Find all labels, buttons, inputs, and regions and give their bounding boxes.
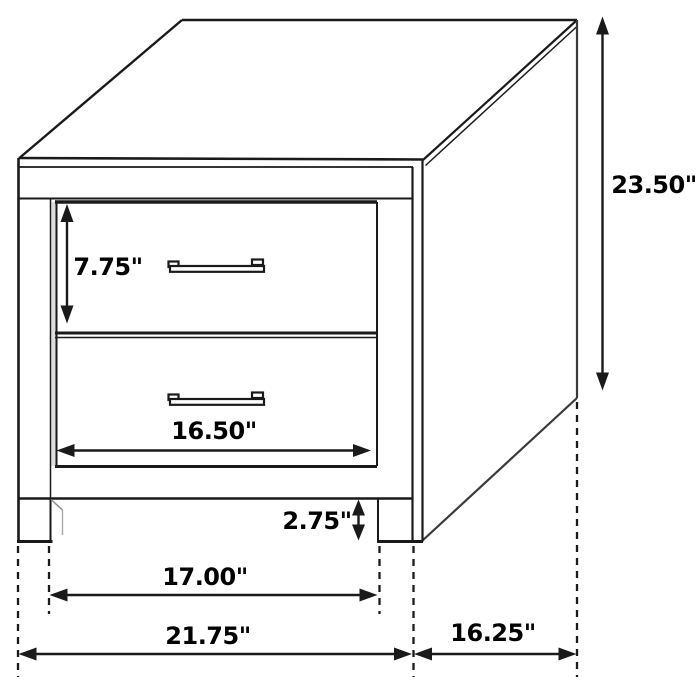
top-panel	[19, 20, 578, 167]
top-left-edge	[20, 20, 182, 158]
left-leg-side-top	[51, 500, 63, 511]
drawer-handle	[169, 393, 265, 405]
drawer-height-label: 7.75"	[73, 255, 142, 279]
leg-height-arrow	[352, 500, 365, 541]
nightstand-dimension-diagram: 7.75" 23.50" 16.50" 2.75" 17.00" 21.75" …	[0, 0, 700, 700]
top-right-edge-inner	[426, 26, 578, 166]
handle-bar	[170, 266, 264, 272]
depth-arrow	[414, 648, 577, 661]
nightstand-line-drawing	[0, 0, 700, 700]
dimension-arrows	[19, 17, 610, 661]
top-right-edge-outer	[423, 21, 577, 161]
side-bottom-edge	[422, 398, 577, 541]
top-front-edge	[19, 158, 424, 160]
drawer-handle	[169, 260, 265, 272]
legs	[17, 499, 423, 542]
front-frame	[19, 158, 414, 542]
depth-label: 16.25"	[450, 621, 535, 645]
leg-height-label: 2.75"	[282, 509, 351, 533]
overall-height-label: 23.50"	[611, 173, 696, 197]
width-between-legs-label: 17.00"	[162, 565, 247, 589]
drawer-width-label: 16.50"	[171, 419, 256, 443]
drawer-width-arrow	[57, 444, 372, 457]
overall-width-label: 21.75"	[165, 624, 250, 648]
handle-right-post	[252, 260, 263, 266]
overall-height-arrow	[596, 17, 609, 391]
drawer-height-arrow	[61, 204, 74, 324]
